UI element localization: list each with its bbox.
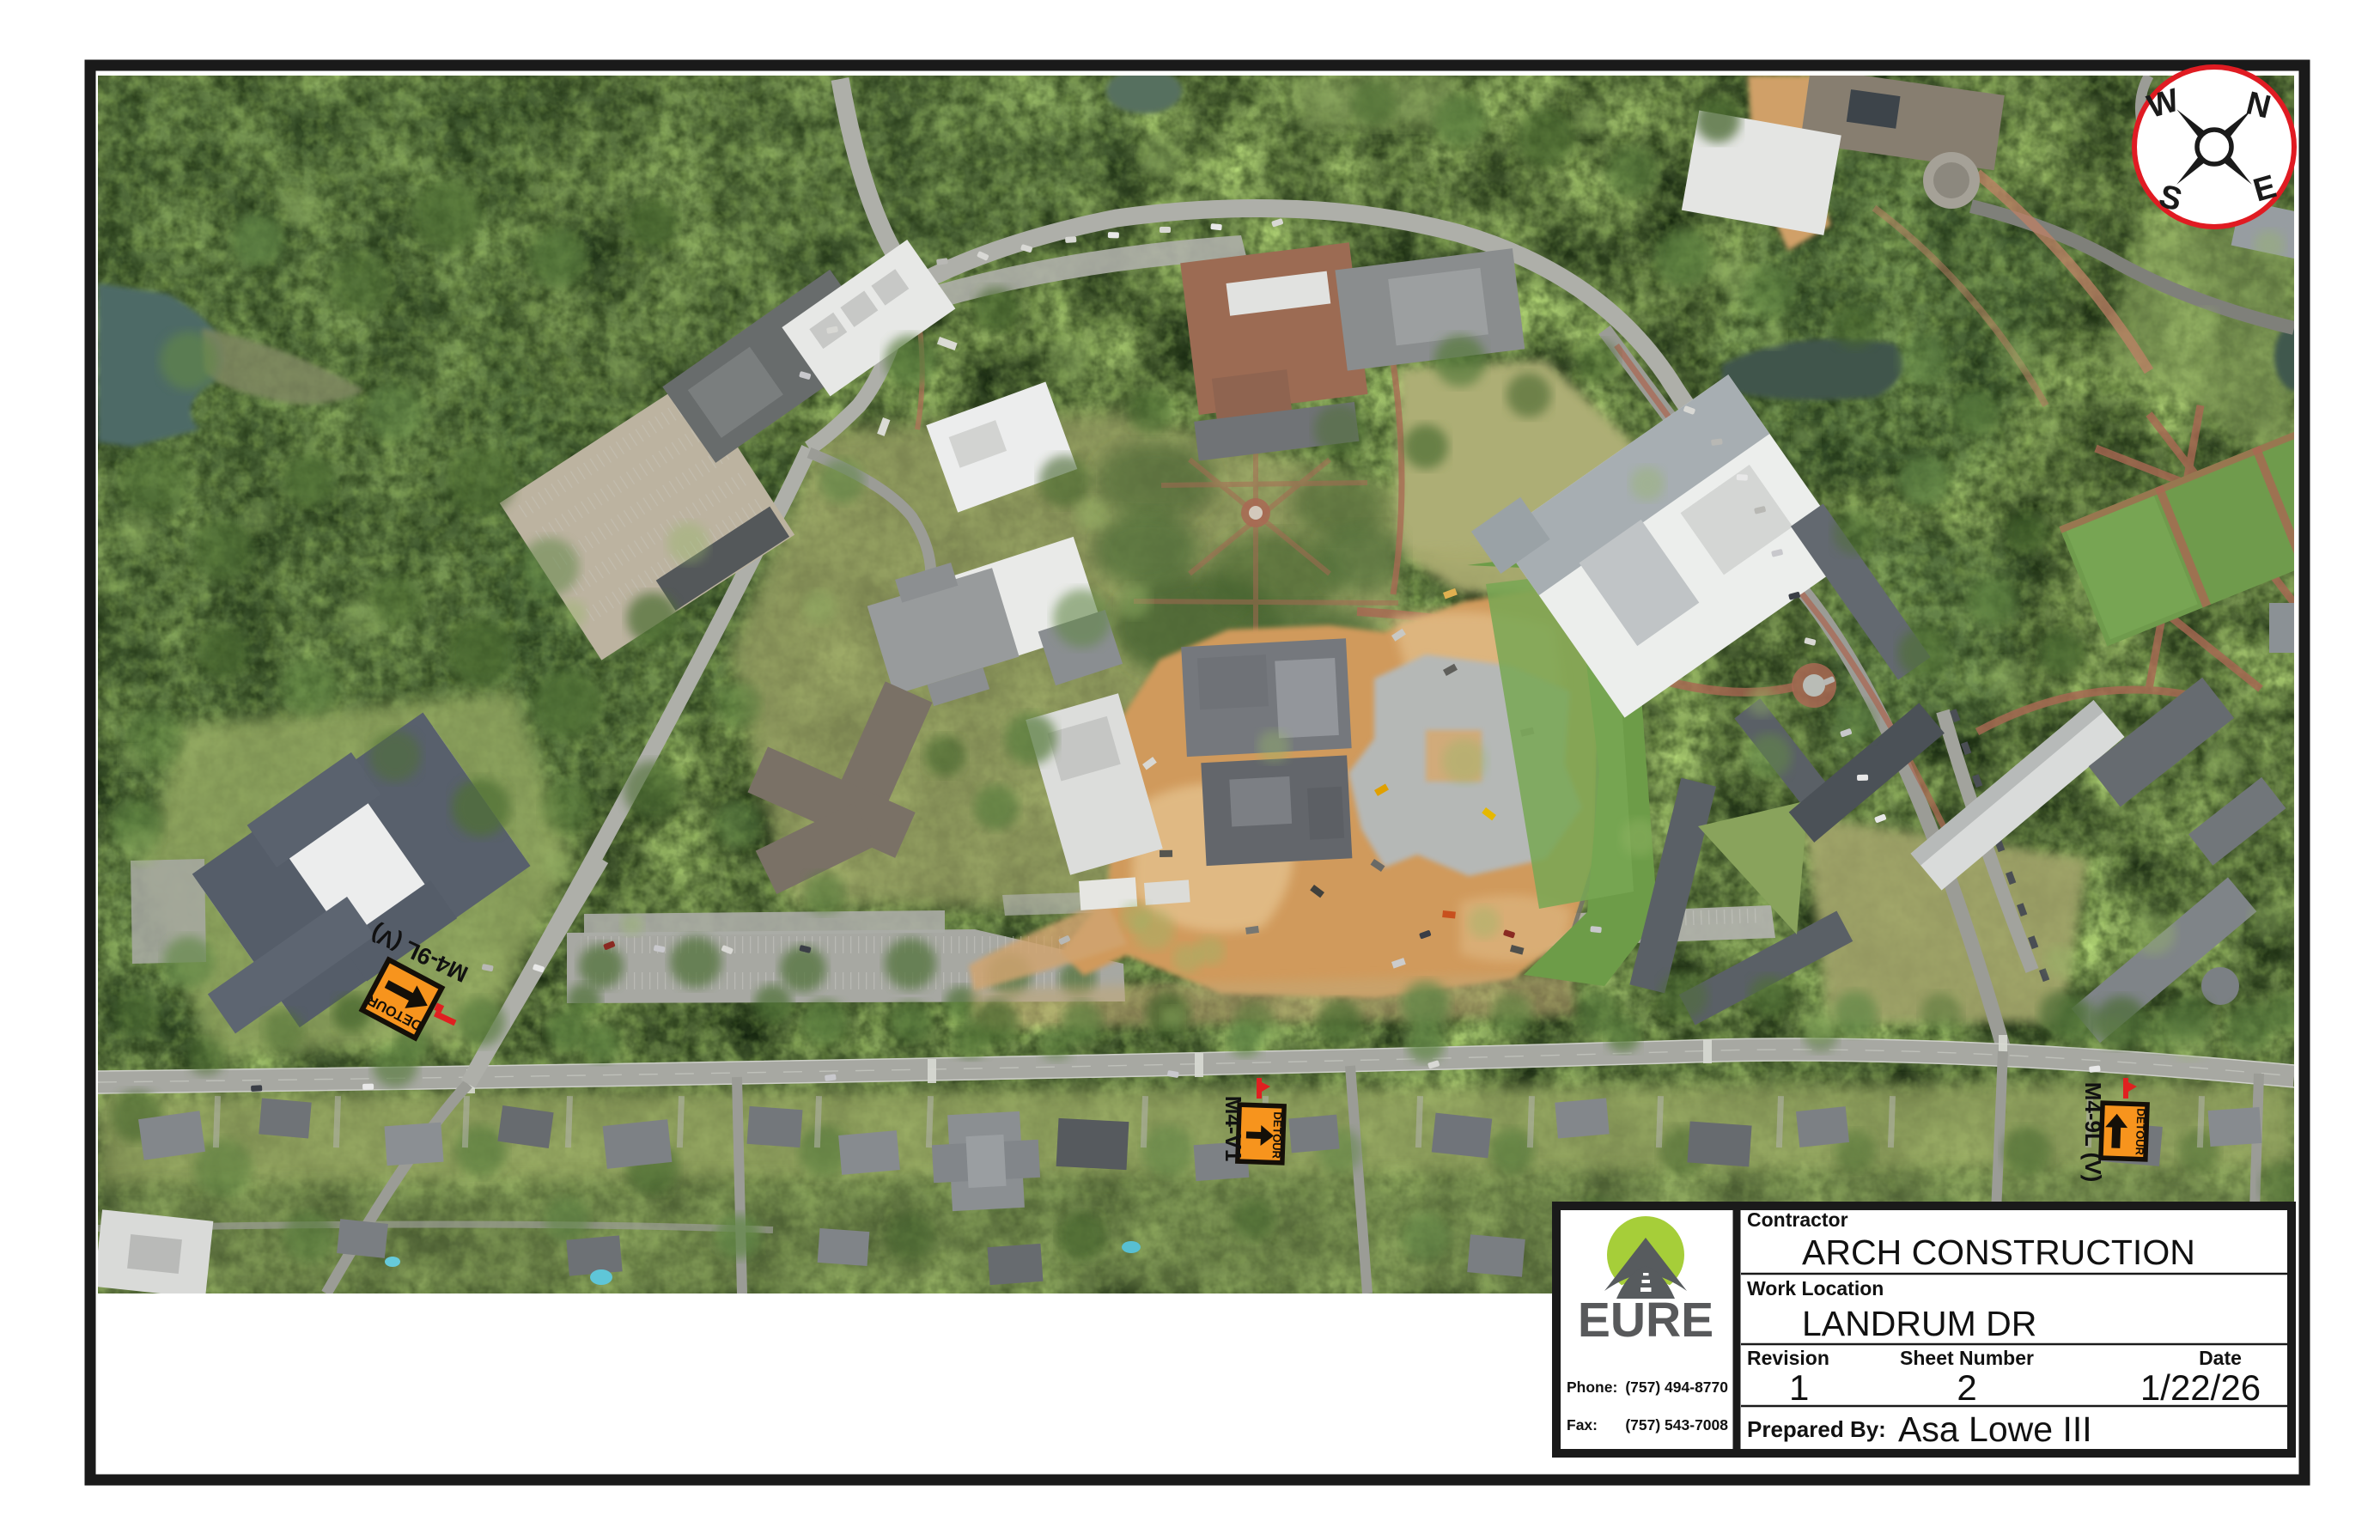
svg-text:Contractor: Contractor (1747, 1208, 1848, 1231)
svg-text:DETOUR: DETOUR (1269, 1111, 1284, 1160)
svg-text:(757) 543-7008: (757) 543-7008 (1625, 1416, 1728, 1433)
svg-text:EURE: EURE (1578, 1293, 1713, 1348)
svg-text:ARCH CONSTRUCTION: ARCH CONSTRUCTION (1802, 1233, 2195, 1272)
svg-text:Phone:: Phone: (1567, 1379, 1617, 1396)
svg-text:M4-9L (V): M4-9L (V) (2080, 1082, 2106, 1183)
svg-text:Work Location: Work Location (1747, 1277, 1884, 1300)
svg-text:1/22/26: 1/22/26 (2140, 1367, 2261, 1408)
svg-text:Date: Date (2199, 1347, 2242, 1369)
svg-text:M4-V1: M4-V1 (1220, 1096, 1246, 1162)
svg-text:(757) 494-8770: (757) 494-8770 (1625, 1379, 1728, 1396)
svg-text:Prepared By:: Prepared By: (1747, 1416, 1886, 1442)
svg-text:DETOUR: DETOUR (2133, 1108, 2148, 1156)
svg-text:LANDRUM DR: LANDRUM DR (1802, 1304, 2036, 1343)
svg-text:1: 1 (1789, 1367, 1809, 1408)
svg-text:Fax:: Fax: (1567, 1416, 1598, 1433)
svg-text:2: 2 (1957, 1367, 1976, 1408)
svg-text:Sheet Number: Sheet Number (1900, 1347, 2034, 1369)
svg-text:Asa Lowe III: Asa Lowe III (1898, 1409, 2092, 1449)
svg-text:Revision: Revision (1747, 1347, 1829, 1369)
